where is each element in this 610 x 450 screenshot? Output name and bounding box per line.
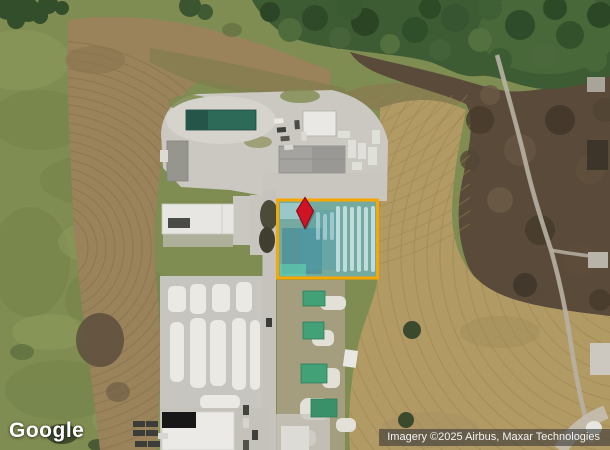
parcel-overlay[interactable] [278, 200, 378, 278]
building-southeast [281, 426, 309, 450]
map-canvas[interactable]: Google Imagery ©2025 Airbus, Maxar Techn… [0, 0, 610, 450]
white-building-north [303, 111, 336, 136]
attribution-text: Imagery ©2025 Airbus, Maxar Technologies [387, 431, 600, 443]
attribution-bar: Imagery ©2025 Airbus, Maxar Technologies [379, 429, 610, 446]
gray-building-west [167, 141, 188, 181]
satellite-imagery [0, 0, 610, 450]
parcel-fill-detail [280, 203, 375, 276]
google-logo[interactable]: Google [9, 419, 84, 443]
